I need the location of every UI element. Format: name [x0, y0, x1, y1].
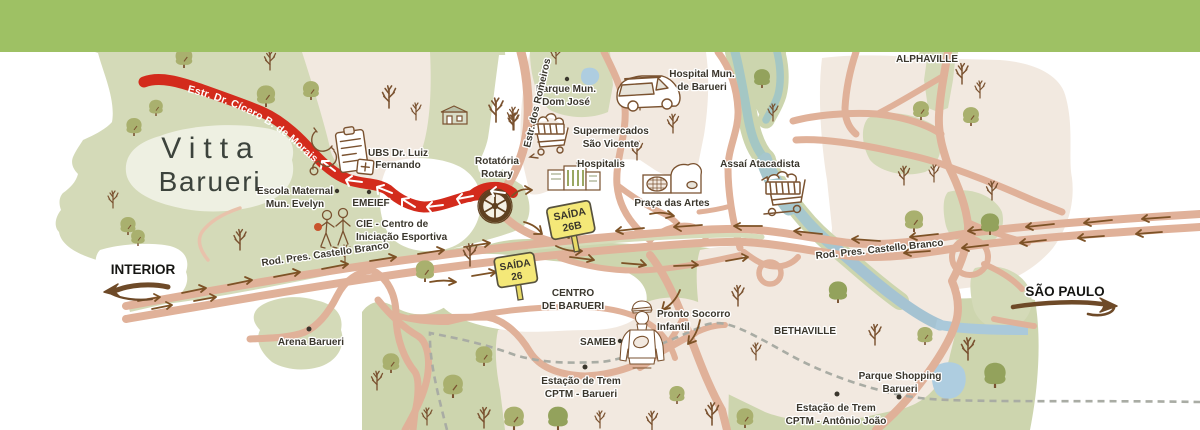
- svg-text:Dom José: Dom José: [542, 97, 590, 108]
- svg-text:SÃO PAULO: SÃO PAULO: [1025, 284, 1104, 299]
- svg-text:Assaí Atacadista: Assaí Atacadista: [720, 159, 800, 170]
- svg-text:DE BARUERI: DE BARUERI: [542, 301, 604, 312]
- svg-text:Barueri: Barueri: [159, 166, 262, 197]
- svg-text:CPTM - Antônio João: CPTM - Antônio João: [786, 416, 887, 427]
- svg-text:ALPHAVILLE: ALPHAVILLE: [896, 54, 958, 65]
- svg-text:Fernando: Fernando: [375, 160, 421, 171]
- svg-text:São Vicente: São Vicente: [583, 139, 640, 150]
- svg-text:CPTM - Barueri: CPTM - Barueri: [545, 389, 617, 400]
- svg-text:Parque Shopping: Parque Shopping: [859, 371, 942, 382]
- svg-text:CENTRO: CENTRO: [552, 288, 594, 299]
- svg-text:Rotary: Rotary: [481, 169, 513, 180]
- svg-text:Escola Maternal: Escola Maternal: [257, 186, 333, 197]
- svg-text:Vitta: Vitta: [161, 132, 261, 165]
- svg-text:Estação de Trem: Estação de Trem: [541, 376, 621, 387]
- svg-text:Hospitalis: Hospitalis: [577, 159, 625, 170]
- svg-text:BETHAVILLE: BETHAVILLE: [774, 326, 836, 337]
- svg-text:INTERIOR: INTERIOR: [111, 262, 176, 277]
- svg-text:de Barueri: de Barueri: [677, 82, 727, 93]
- svg-text:Mun. Evelyn: Mun. Evelyn: [266, 199, 324, 210]
- svg-text:Praça das Artes: Praça das Artes: [634, 198, 710, 209]
- svg-text:EMEIEF: EMEIEF: [352, 198, 389, 209]
- svg-text:26: 26: [511, 271, 524, 284]
- svg-text:CIE - Centro de: CIE - Centro de: [356, 219, 429, 230]
- svg-text:Iniciação Esportiva: Iniciação Esportiva: [356, 232, 448, 243]
- svg-text:Estação de Trem: Estação de Trem: [796, 403, 876, 414]
- svg-text:Arena Barueri: Arena Barueri: [278, 337, 344, 348]
- svg-text:Barueri: Barueri: [882, 384, 917, 395]
- svg-text:Rotatória: Rotatória: [475, 156, 519, 167]
- svg-text:Pronto Socorro: Pronto Socorro: [657, 309, 730, 320]
- svg-text:Infantil: Infantil: [657, 322, 690, 333]
- svg-text:SAMEB: SAMEB: [580, 337, 616, 348]
- svg-text:UBS Dr. Luiz: UBS Dr. Luiz: [368, 148, 428, 159]
- svg-text:Hospital Mun.: Hospital Mun.: [669, 69, 735, 80]
- svg-text:Supermercados: Supermercados: [573, 126, 649, 137]
